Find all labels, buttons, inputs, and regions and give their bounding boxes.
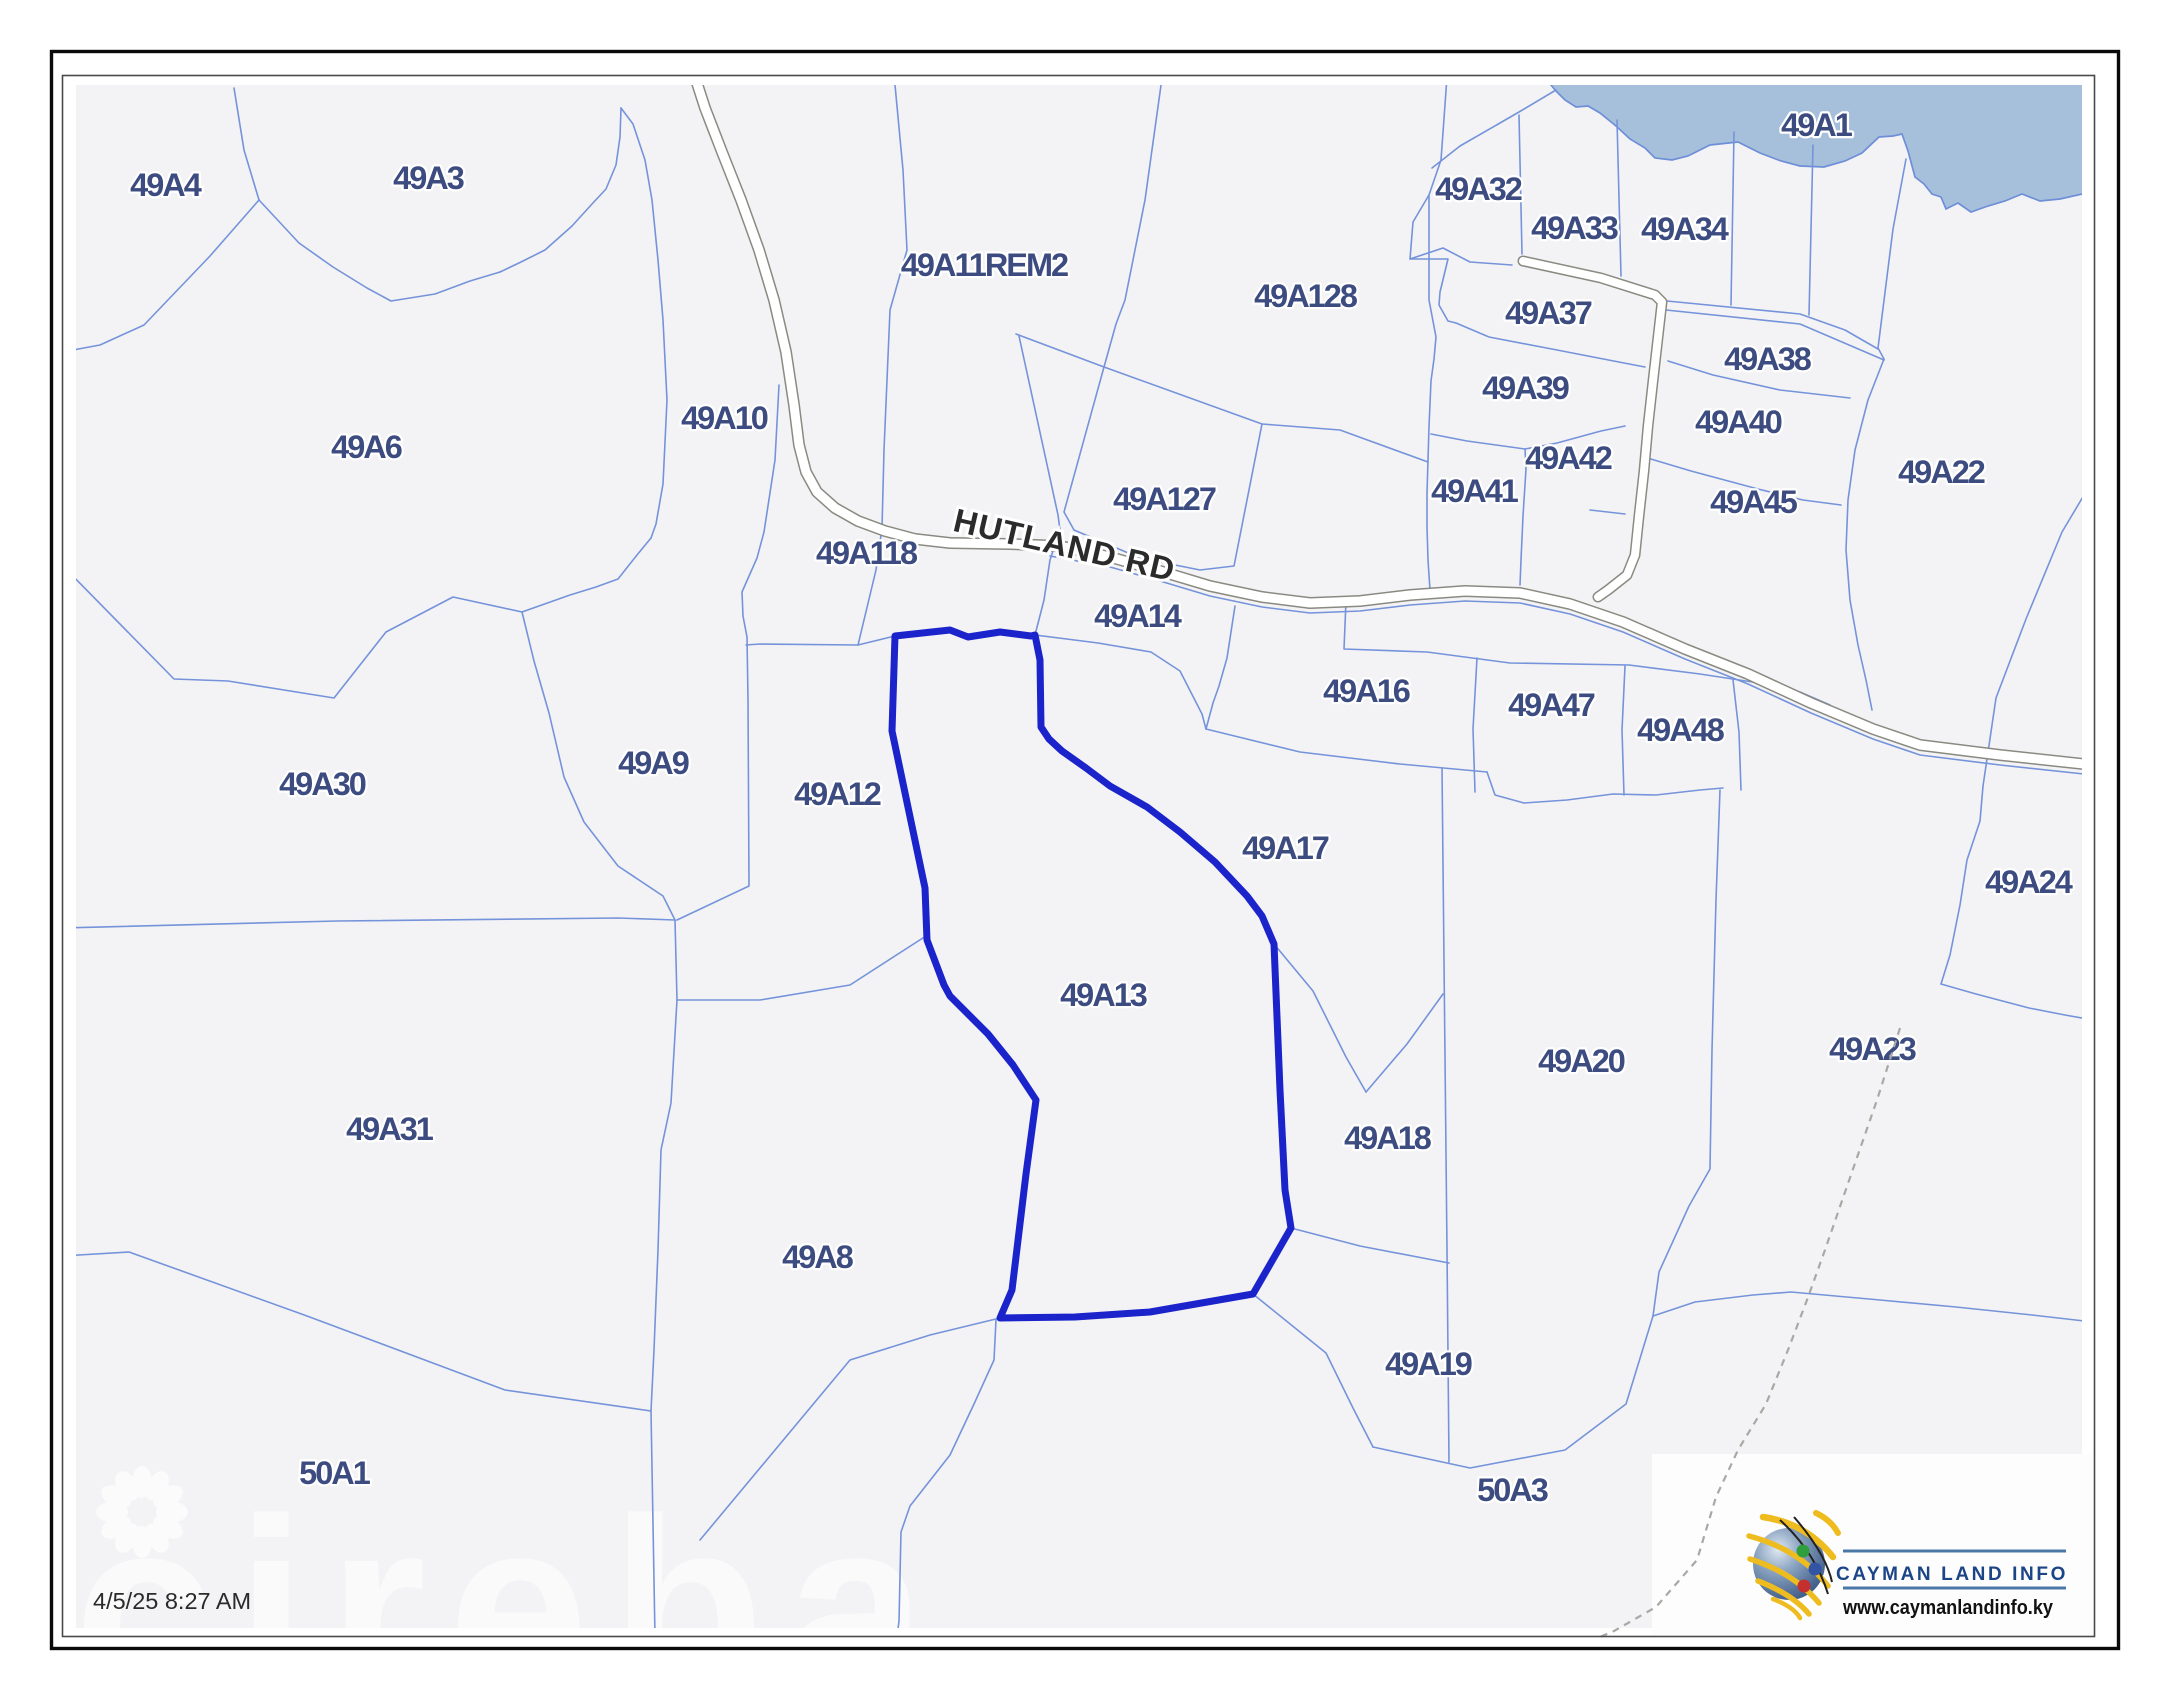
svg-text:49A32: 49A32 [1435, 171, 1522, 207]
svg-text:49A1: 49A1 [1781, 107, 1853, 143]
svg-text:49A40: 49A40 [1695, 404, 1782, 440]
svg-text:50A1: 50A1 [299, 1455, 371, 1491]
svg-text:49A6: 49A6 [331, 429, 402, 465]
svg-text:49A16: 49A16 [1323, 673, 1410, 709]
svg-text:49A9: 49A9 [618, 745, 689, 781]
svg-text:49A42: 49A42 [1525, 440, 1612, 476]
svg-text:49A3: 49A3 [393, 160, 464, 196]
svg-text:49A12: 49A12 [794, 776, 881, 812]
svg-text:49A13: 49A13 [1060, 977, 1147, 1013]
svg-text:49A11REM2: 49A11REM2 [901, 247, 1068, 283]
svg-text:www.caymanlandinfo.ky: www.caymanlandinfo.ky [1842, 1597, 2054, 1619]
svg-text:49A38: 49A38 [1724, 341, 1812, 377]
svg-text:49A47: 49A47 [1508, 687, 1595, 723]
svg-text:49A23: 49A23 [1829, 1031, 1916, 1067]
svg-text:49A14: 49A14 [1094, 598, 1182, 634]
svg-text:50A3: 50A3 [1477, 1472, 1548, 1508]
svg-text:49A20: 49A20 [1538, 1043, 1625, 1079]
svg-text:cireba: cireba [74, 1467, 948, 1700]
svg-text:CAYMAN LAND INFO: CAYMAN LAND INFO [1836, 1564, 2068, 1585]
svg-text:49A128: 49A128 [1254, 278, 1358, 314]
svg-text:49A30: 49A30 [279, 766, 366, 802]
svg-text:49A41: 49A41 [1431, 473, 1519, 509]
svg-text:49A34: 49A34 [1641, 211, 1729, 247]
svg-text:49A118: 49A118 [816, 535, 918, 571]
svg-text:49A19: 49A19 [1385, 1346, 1472, 1382]
svg-text:49A22: 49A22 [1898, 454, 1985, 490]
svg-text:49A127: 49A127 [1113, 481, 1216, 517]
svg-text:49A17: 49A17 [1242, 830, 1329, 866]
svg-text:49A33: 49A33 [1531, 210, 1618, 246]
svg-text:49A37: 49A37 [1505, 295, 1592, 331]
svg-text:49A45: 49A45 [1710, 484, 1798, 520]
svg-text:4/5/25 8:27 AM: 4/5/25 8:27 AM [93, 1588, 251, 1614]
svg-text:49A4: 49A4 [130, 167, 202, 203]
svg-text:49A18: 49A18 [1344, 1120, 1432, 1156]
svg-text:49A39: 49A39 [1482, 370, 1569, 406]
svg-text:49A31: 49A31 [346, 1111, 434, 1147]
svg-text:49A10: 49A10 [681, 400, 768, 436]
svg-text:49A24: 49A24 [1985, 864, 2073, 900]
svg-text:49A48: 49A48 [1637, 712, 1725, 748]
svg-text:49A8: 49A8 [782, 1239, 854, 1275]
